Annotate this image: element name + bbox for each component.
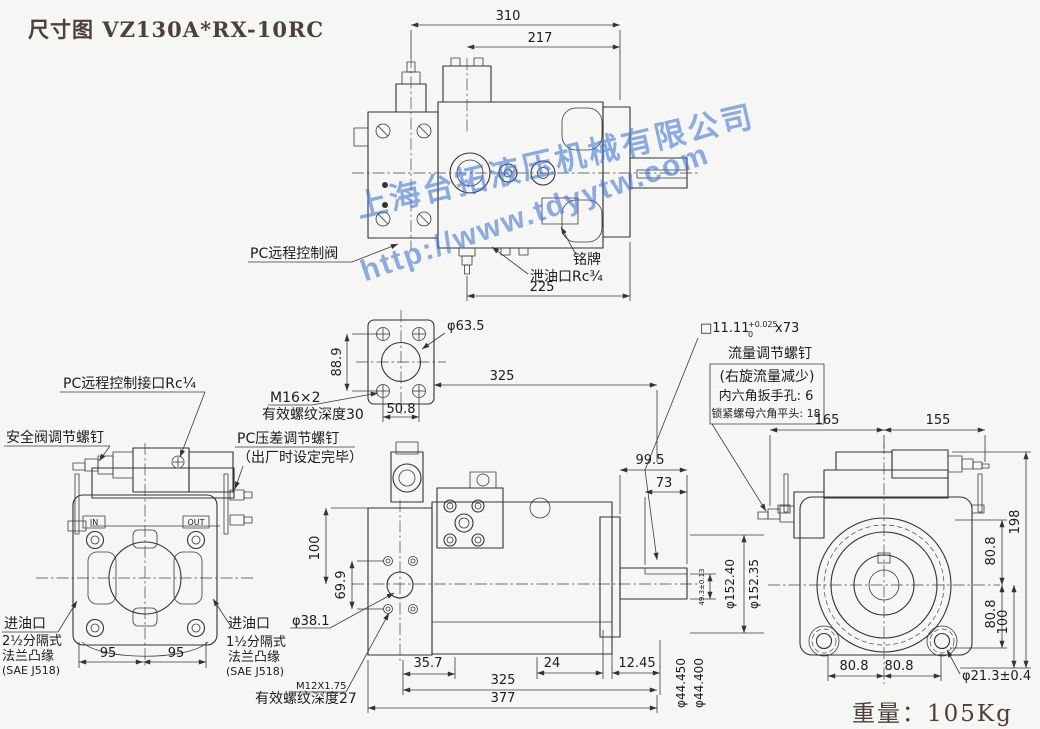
dim-95-right: 95 [168, 646, 185, 661]
dim-dia-38-1: φ38.1 [292, 614, 330, 629]
label-inlet-right-1: 进油口 [228, 616, 270, 632]
label-inlet-left-2: 2½分隔式 [2, 634, 62, 649]
dim-325-top: 325 [490, 369, 515, 384]
dim-24: 24 [544, 656, 561, 671]
label-pc-comp-1: PC压差调节螺钉 [237, 431, 339, 447]
dim-35-7: 35.7 [414, 656, 443, 671]
dim-key-height: 49.3±0.13 [698, 568, 706, 605]
dim-dia-152-40: φ152.40 [723, 559, 737, 609]
drawing-linework: 310 217 225 PC远程控制阀 铭牌 泄油口Rc¾ 88.9 [0, 0, 1040, 729]
weight-label: 重量：105Kg [852, 694, 1013, 728]
side-view: 100 69.9 φ38.1 M12X1.75 有效螺纹深度27 99.5 73… [235, 431, 764, 713]
label-m16: M16×2 [270, 390, 321, 406]
key-tol-upper: +0.025 [748, 320, 778, 329]
port-in-tag: IN [90, 518, 98, 527]
dim-95-left: 95 [100, 646, 117, 661]
dim-325-bottom: 325 [491, 673, 516, 688]
label-thread-depth-27: 有效螺纹深度27 [255, 691, 357, 707]
label-drain-port: 泄油口Rc¾ [530, 269, 603, 285]
dim-377: 377 [491, 691, 516, 706]
label-pc-remote-port: PC远程控制接口Rc¼ [63, 375, 197, 392]
label-inlet-left-3: 法兰凸缘 [2, 649, 54, 664]
label-inlet-left-4: (SAE J518) [2, 664, 60, 677]
dim-100-rear: 100 [996, 610, 1011, 635]
top-view: 310 217 225 PC远程控制阀 铭牌 泄油口Rc¾ [248, 9, 700, 301]
key-square: □11.11 [700, 321, 750, 336]
label-pc-comp-2: （出厂时设定完毕） [237, 450, 363, 466]
dim-80-8-top: 80.8 [984, 537, 999, 566]
label-inlet-right-2: 1½分隔式 [226, 635, 286, 650]
dim-310: 310 [496, 9, 521, 24]
port-out-tag: OUT [187, 518, 204, 527]
dim-12-45: 12.45 [618, 656, 655, 671]
dim-99-5: 99.5 [636, 453, 665, 468]
label-inlet-right-4: (SAE J518) [226, 665, 284, 678]
dim-foot-hole: φ21.3±0.4 [962, 669, 1031, 684]
label-flow-note2: 内六角扳手孔: 6 [719, 388, 814, 404]
dim-155: 155 [926, 413, 951, 428]
label-inlet-left-1: 进油口 [4, 616, 46, 632]
dim-73: 73 [656, 476, 673, 491]
dim-100: 100 [308, 536, 323, 561]
key-length: x73 [775, 321, 799, 336]
nameplate-plate [542, 198, 578, 224]
dim-shaft-dia-1: φ44.450 [674, 658, 688, 708]
dim-69-9: 69.9 [334, 571, 349, 600]
label-inlet-right-3: 法兰凸缘 [228, 650, 280, 665]
dim-dia-152-35: φ152.35 [747, 559, 761, 609]
page-title: 尺寸图 VZ130A*RX-10RC [28, 14, 324, 44]
label-thread-depth-30: 有效螺纹深度30 [262, 407, 364, 423]
dim-217: 217 [528, 31, 553, 46]
dim-50-8: 50.8 [387, 402, 416, 417]
key-spec-note: □11.11 +0.025 0 x73 流量调节螺钉 (右旋流量减少) 内六角扳… [645, 320, 824, 560]
label-flow-screw: 流量调节螺钉 [728, 346, 812, 362]
front-view: IN OUT 95 95 安全阀调节螺钉 PC远程控制接口Rc¼ 进油口 2½分… [2, 375, 286, 678]
label-nameplate: 铭牌 [573, 251, 601, 268]
label-flow-note3: 锁紧螺母六角平头: 18 [711, 406, 820, 420]
dim-88-9: 88.9 [330, 348, 345, 377]
dim-dia-63-5: φ63.5 [447, 319, 485, 334]
key-tol-lower: 0 [748, 330, 753, 339]
label-flow-note1: (右旋流量减少) [720, 369, 815, 385]
rear-view: 165 155 80.8 80.8 100 198 80.8 80.8 φ21.… [758, 413, 1031, 684]
label-relief-screw: 安全阀调节螺钉 [6, 429, 104, 446]
dim-165: 165 [815, 413, 840, 428]
dim-80-8-bl: 80.8 [840, 659, 869, 674]
dim-shaft-dia-2: φ44.400 [692, 658, 706, 708]
drawing-sheet: 310 217 225 PC远程控制阀 铭牌 泄油口Rc¾ 88.9 [0, 0, 1040, 729]
dim-80-8-br: 80.8 [885, 659, 914, 674]
label-pc-remote-valve: PC远程控制阀 [250, 246, 338, 262]
dim-198: 198 [1008, 510, 1023, 535]
